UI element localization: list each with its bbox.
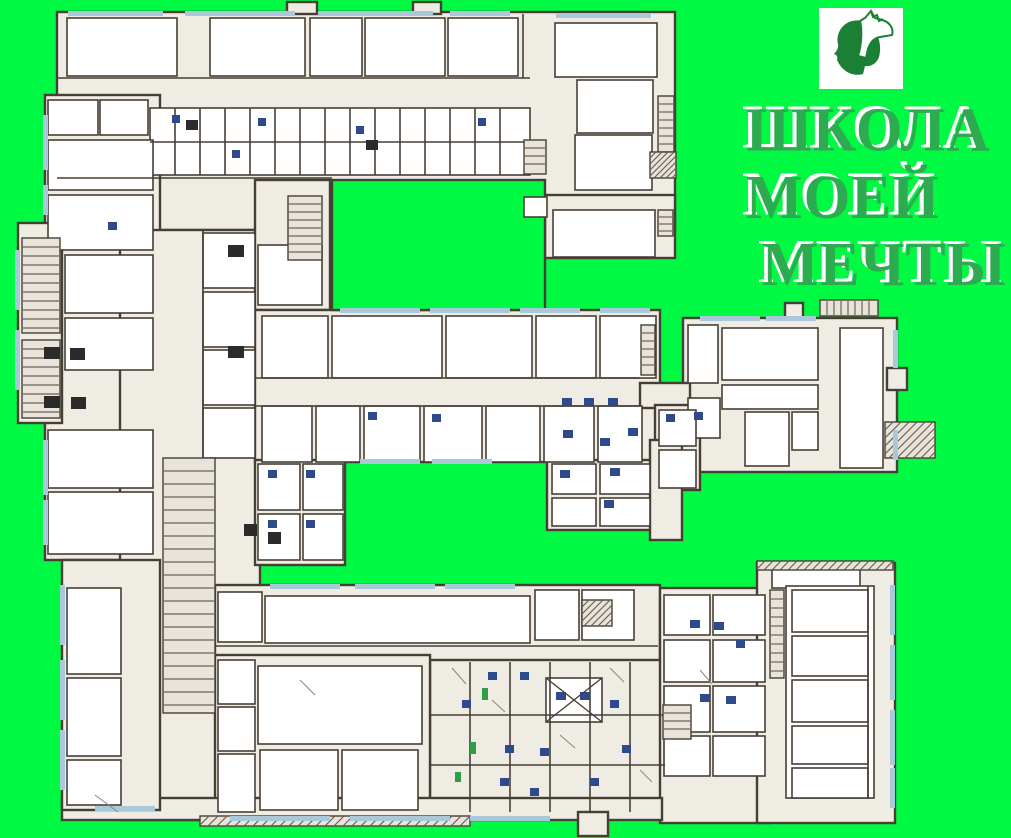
- school-logo: [819, 8, 903, 89]
- courtyards: [332, 180, 545, 310]
- poster-title: ШКОЛА МОЕЙ МЕЧТЫ: [746, 96, 1011, 298]
- poster: ШКОЛА МОЕЙ МЕЧТЫ: [0, 0, 1011, 838]
- man-and-horse-icon: [819, 8, 903, 89]
- title-line-3: МЕЧТЫ: [746, 230, 1011, 297]
- title-line-2: МОЕЙ: [746, 163, 1011, 230]
- title-line-1: ШКОЛА: [746, 96, 1011, 163]
